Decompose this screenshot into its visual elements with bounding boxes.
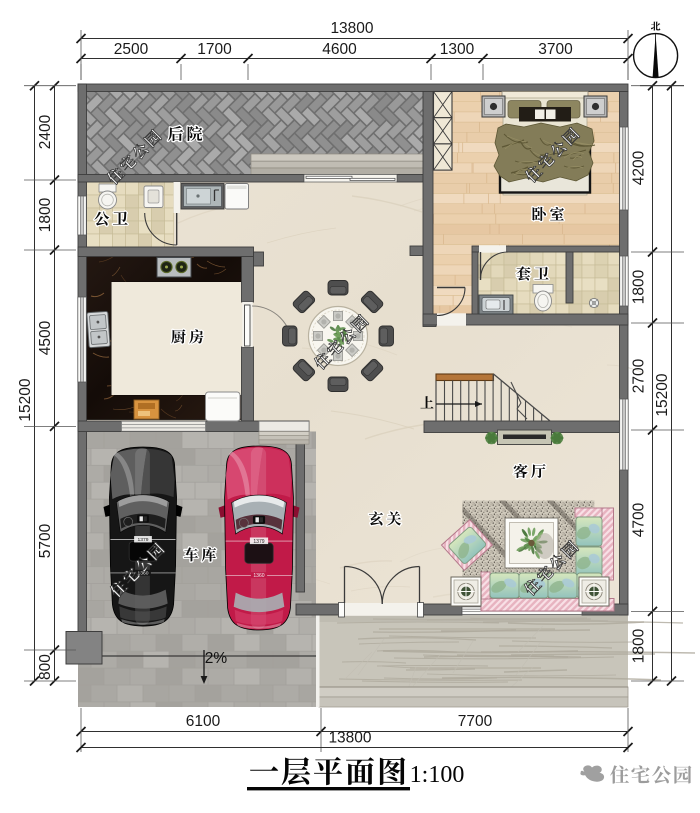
svg-text:7700: 7700 xyxy=(458,713,493,730)
svg-text:13800: 13800 xyxy=(330,20,373,37)
svg-text:800: 800 xyxy=(37,654,54,680)
svg-text:2400: 2400 xyxy=(37,114,54,149)
svg-text:1379: 1379 xyxy=(253,539,264,545)
svg-text:1700: 1700 xyxy=(197,41,232,58)
svg-text:1:100: 1:100 xyxy=(410,762,465,788)
svg-text:1360: 1360 xyxy=(253,573,264,579)
svg-text:13800: 13800 xyxy=(328,730,371,747)
svg-text:1300: 1300 xyxy=(440,41,475,58)
svg-text:2700: 2700 xyxy=(631,358,648,393)
svg-text:2%: 2% xyxy=(205,650,228,667)
svg-text:6100: 6100 xyxy=(186,713,221,730)
svg-text:3700: 3700 xyxy=(538,41,573,58)
svg-text:1379: 1379 xyxy=(138,537,149,543)
svg-text:4500: 4500 xyxy=(37,320,54,355)
svg-text:5700: 5700 xyxy=(37,523,54,558)
svg-text:1800: 1800 xyxy=(631,628,648,663)
svg-text:4200: 4200 xyxy=(631,150,648,185)
svg-text:2500: 2500 xyxy=(114,41,149,58)
svg-text:15200: 15200 xyxy=(654,373,671,416)
svg-text:4700: 4700 xyxy=(631,502,648,537)
svg-text:4600: 4600 xyxy=(322,41,357,58)
svg-text:15200: 15200 xyxy=(17,378,34,421)
svg-text:1800: 1800 xyxy=(37,197,54,232)
svg-text:1800: 1800 xyxy=(631,269,648,304)
